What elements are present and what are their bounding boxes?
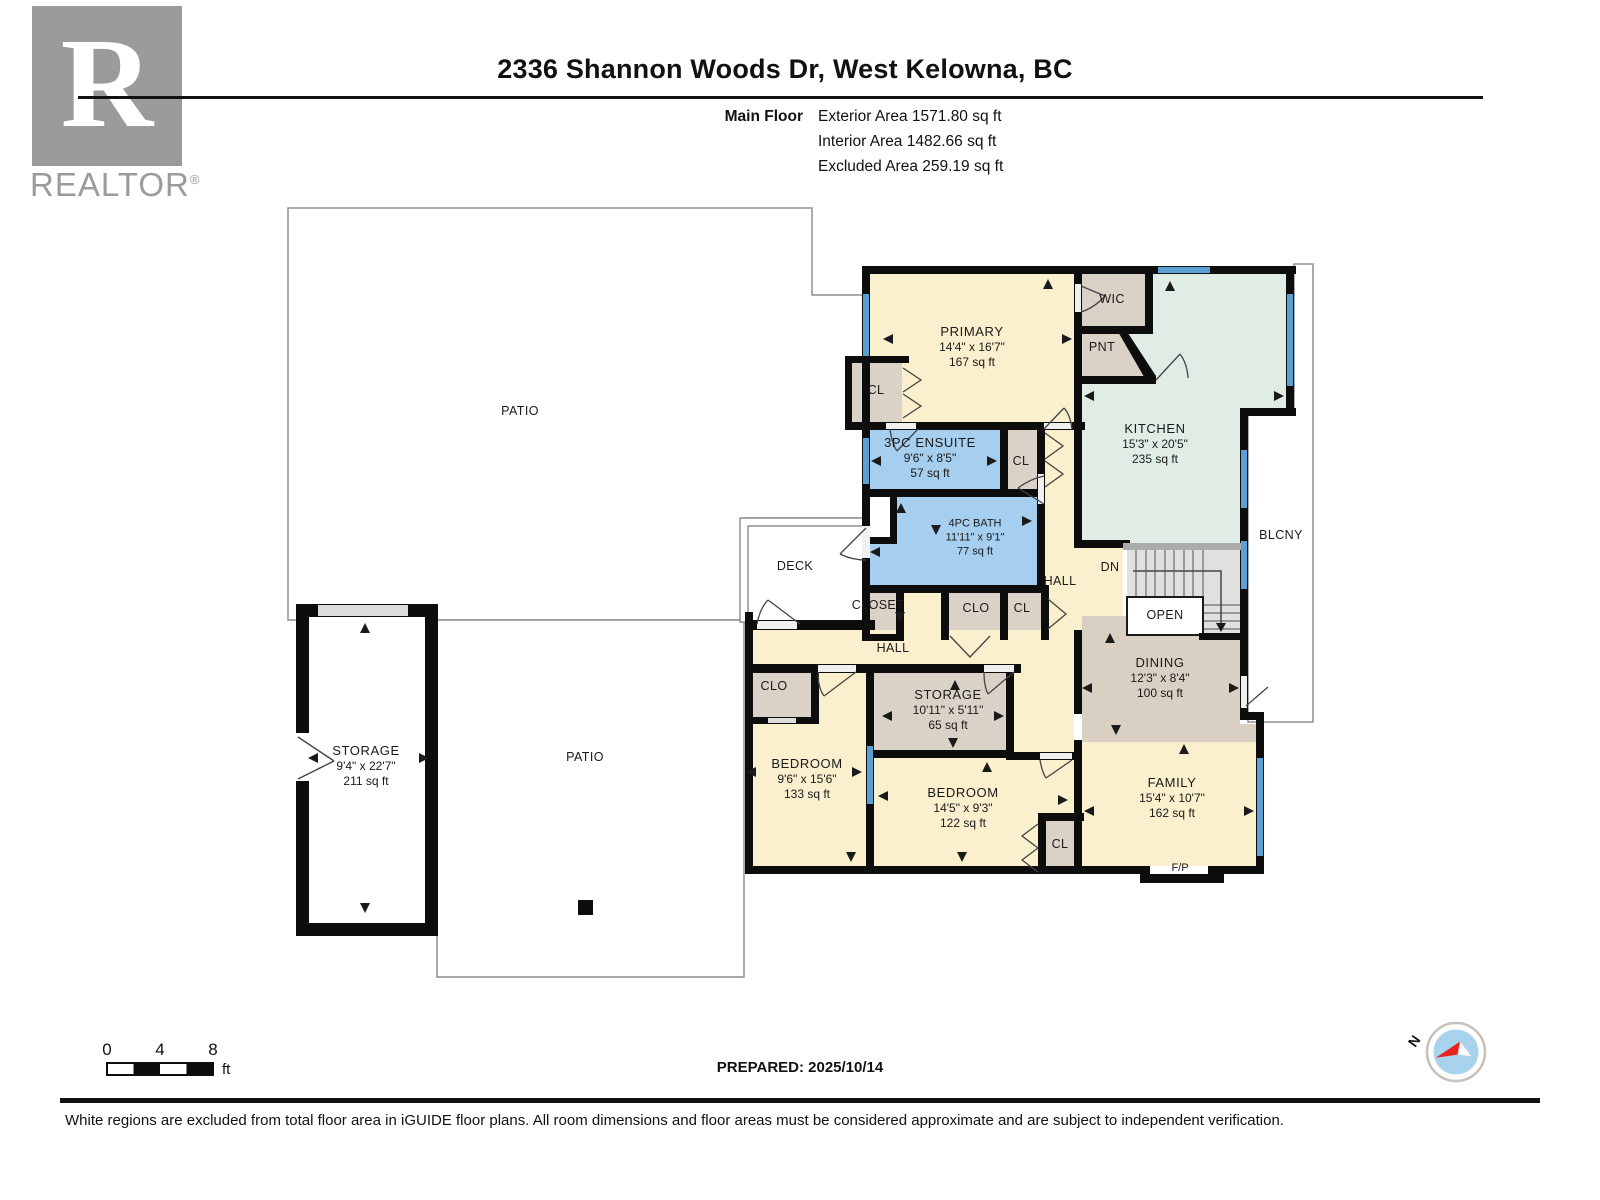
- room-label-family: FAMILY15'4" x 10'7"162 sq ft: [1139, 775, 1205, 821]
- scale-tick-4: 4: [155, 1040, 164, 1060]
- staircase: [1123, 543, 1244, 640]
- scale-bar: [107, 1063, 213, 1075]
- label-clo-bedroom1: CLO: [761, 679, 788, 695]
- compass-icon: [1427, 1023, 1485, 1081]
- scale-tick-0: 0: [102, 1040, 111, 1060]
- scale-tick-8: 8: [208, 1040, 217, 1060]
- label-cl-primary: CL: [868, 383, 885, 399]
- label-cl-bedroom2: CL: [1052, 837, 1069, 853]
- floor-plan-page: R REALTOR® 2336 Shannon Woods Dr, West K…: [0, 0, 1600, 1200]
- label-deck: DECK: [777, 559, 813, 575]
- room-label-dining: DINING12'3" x 8'4"100 sq ft: [1130, 655, 1189, 701]
- scale-unit: ft: [222, 1061, 230, 1078]
- room-label-storage-mid: STORAGE10'11" x 5'11"65 sq ft: [913, 687, 984, 733]
- room-label-storage-left: STORAGE9'4" x 22'7"211 sq ft: [332, 743, 400, 789]
- label-fireplace: F/P: [1171, 862, 1188, 876]
- room-label-bath: 4PC BATH11'11" x 9'1"77 sq ft: [946, 517, 1005, 558]
- label-patio-lower: PATIO: [566, 750, 604, 766]
- label-cl-bath: CL: [1014, 601, 1031, 617]
- label-hall-lower: HALL: [877, 641, 910, 657]
- prepared-date: PREPARED: 2025/10/14: [600, 1059, 1000, 1076]
- room-label-kitchen: KITCHEN15'3" x 20'5"235 sq ft: [1122, 421, 1188, 467]
- label-cl-ensuite: CL: [1013, 454, 1030, 470]
- room-label-bedroom2: BEDROOM14'5" x 9'3"122 sq ft: [927, 785, 998, 831]
- patio-post: [578, 900, 593, 915]
- room-label-primary: PRIMARY14'4" x 16'7"167 sq ft: [939, 324, 1005, 370]
- label-wic: WIC: [1099, 292, 1125, 308]
- room-label-ensuite: 3PC ENSUITE9'6" x 8'5"57 sq ft: [884, 435, 976, 481]
- label-clo-bath: CLO: [963, 601, 990, 617]
- footer-disclaimer: White regions are excluded from total fl…: [65, 1112, 1560, 1129]
- floor-plan-drawing: [0, 0, 1600, 1200]
- label-closet: CLOSET: [852, 598, 904, 614]
- label-pantry: PNT: [1089, 340, 1115, 356]
- label-balcony: BLCNY: [1259, 528, 1303, 544]
- label-hall-mid: HALL: [1044, 574, 1077, 590]
- footer-rule: [60, 1098, 1540, 1103]
- label-stairs-open: OPEN: [1146, 608, 1183, 624]
- room-label-bedroom1: BEDROOM9'6" x 15'6"133 sq ft: [771, 756, 842, 802]
- label-stairs-dn: DN: [1101, 560, 1120, 576]
- patio-lower-outline: [437, 620, 744, 977]
- label-patio-upper: PATIO: [501, 404, 539, 420]
